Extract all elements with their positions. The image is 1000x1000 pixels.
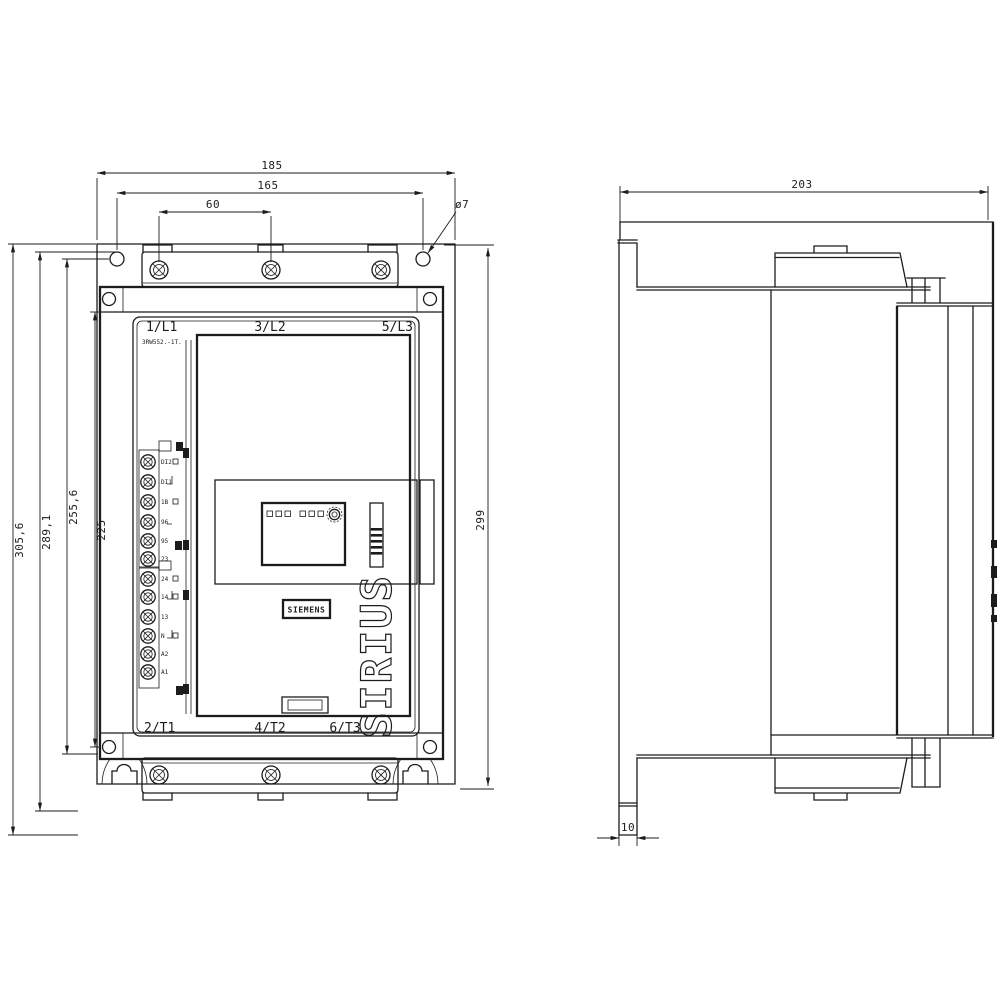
handle [282, 697, 328, 713]
ctrl-terminal-label: DI1 [161, 479, 172, 486]
housing-screw-hole [424, 741, 437, 754]
dim-hole-diameter: ø7 [455, 198, 469, 211]
busbar-screw [150, 261, 168, 279]
terminal-label-1L1: 1/L1 [146, 320, 177, 335]
dim-depth: 203 [791, 178, 812, 191]
side-connector-bay [420, 480, 434, 584]
housing-screw-hole [103, 293, 116, 306]
dim-hole-spacing: 165 [257, 179, 278, 192]
sirius-lettering: SIRIUS [352, 574, 401, 738]
terminal-block-bottom-profile [775, 758, 907, 800]
terminal-label-2T1: 2/T1 [144, 721, 175, 736]
dim-height-total: 305,6 [13, 522, 26, 558]
ctrl-terminal-label: 1B [161, 499, 169, 506]
busbar-screw [262, 261, 280, 279]
led-indicator [267, 511, 273, 517]
busbar-screw [150, 766, 168, 784]
dim-height-right: 299 [474, 509, 487, 530]
terminal-label-3L2: 3/L2 [254, 320, 285, 335]
ctrl-terminal-label: N [161, 633, 165, 640]
ctrl-terminal-label: 13 [161, 614, 169, 621]
technical-drawing: 1/L1 3/L2 5/L3 3RW552.-1T. 2/T1 4/T2 6/T… [0, 0, 1000, 1000]
ctrl-terminal-label: 23 [161, 556, 169, 563]
busbar-screw [372, 261, 390, 279]
lower-bracket-profile [771, 735, 993, 787]
connector-strip [370, 503, 383, 567]
housing-screw-hole [424, 293, 437, 306]
mounting-hole-top-left [110, 252, 124, 266]
dim-busbar-pitch: 60 [206, 198, 220, 211]
dim-height-225: 225 [95, 519, 108, 540]
keyhole-slot-left [112, 765, 137, 785]
busbar-screw [372, 766, 390, 784]
flange-profile [637, 287, 930, 758]
busbar-bottom [142, 758, 398, 800]
led-indicator [285, 511, 291, 517]
dim-overall-width: 185 [261, 159, 282, 172]
led-indicator [309, 511, 315, 517]
ctrl-terminal-label: 96 [161, 519, 169, 526]
brand-plate: SIEMENS [283, 600, 330, 618]
ctrl-terminal-label: DI2 [161, 459, 172, 466]
model-number: 3RW552.-1T. [142, 339, 182, 346]
ctrl-terminal-label: A2 [161, 651, 169, 658]
terminal-block-top-profile [775, 246, 907, 287]
dim-height-255: 255,6 [67, 489, 80, 525]
control-module [215, 480, 434, 584]
ctrl-terminal-label: 14 [161, 594, 169, 601]
led-indicator [300, 511, 306, 517]
upper-bracket-profile [897, 278, 993, 306]
mounting-hole-top-right [416, 252, 430, 266]
front-view: 1/L1 3/L2 5/L3 3RW552.-1T. 2/T1 4/T2 6/T… [97, 244, 455, 800]
busbar-top [142, 245, 398, 287]
ctrl-terminal-label: 24 [161, 576, 169, 583]
dim-height-289: 289,1 [40, 514, 53, 550]
terminal-label-5L3: 5/L3 [382, 320, 413, 335]
rotary-knob-icon [327, 507, 342, 522]
led-indicator [276, 511, 282, 517]
terminal-label-4T2: 4/T2 [254, 721, 285, 736]
siemens-logo: SIEMENS [288, 606, 326, 615]
led-indicator [318, 511, 324, 517]
dim-standoff: 10 [621, 821, 635, 834]
housing-screw-hole [103, 741, 116, 754]
ctrl-terminal-label: A1 [161, 669, 169, 676]
keyhole-slot-right [403, 765, 428, 785]
mounting-bracket-profile [618, 222, 637, 835]
busbar-screw [262, 766, 280, 784]
ctrl-terminal-label: 95 [161, 538, 169, 545]
side-view [618, 222, 997, 835]
